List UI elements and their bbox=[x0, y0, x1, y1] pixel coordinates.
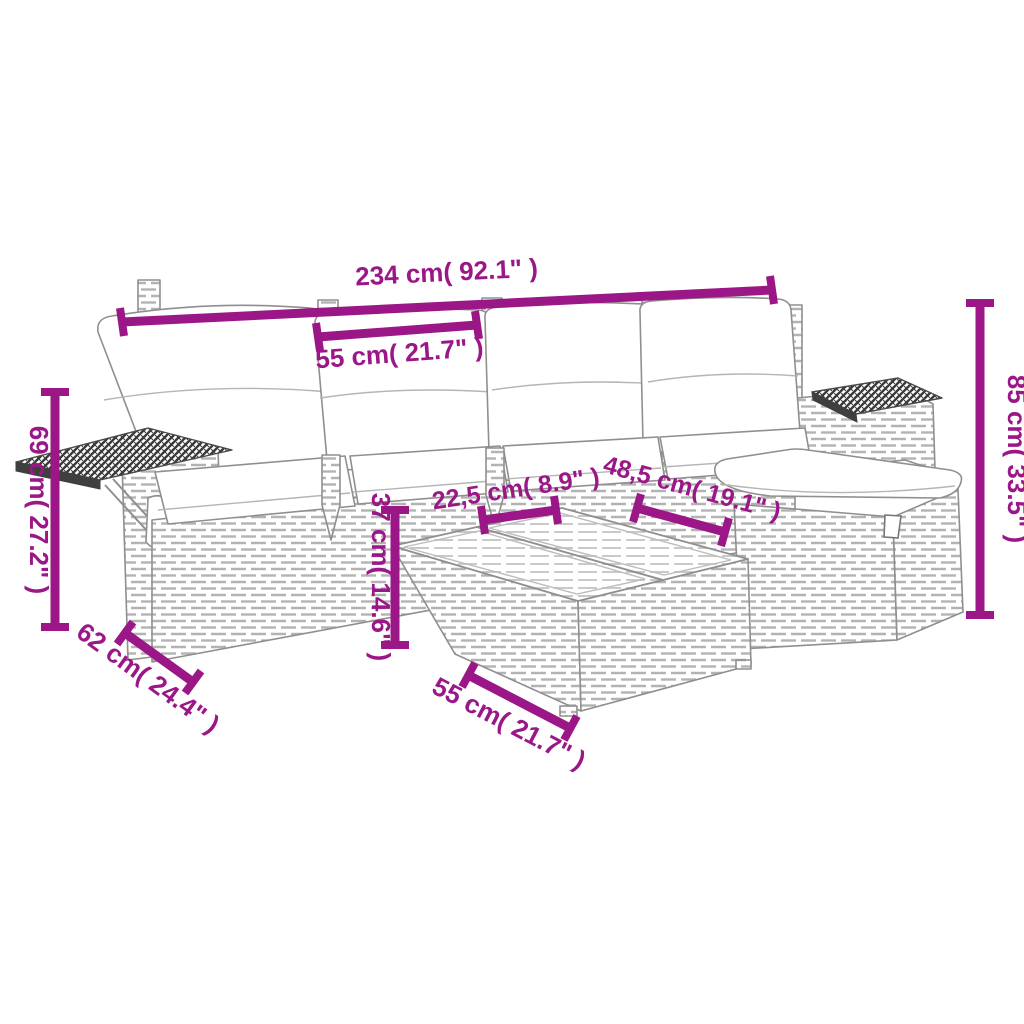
dim-label-total-height: 85 cm( 33.5" ) bbox=[1002, 375, 1024, 543]
dim-label-back-height: 69 cm( 27.2" ) bbox=[24, 426, 54, 594]
product-dimension-diagram: 234 cm( 92.1" ) 55 cm( 21.7" ) 69 cm( 27… bbox=[0, 0, 1024, 1024]
ottoman-side-face bbox=[893, 489, 963, 640]
dimension-total-height: 85 cm( 33.5" ) bbox=[966, 303, 1024, 615]
ottoman-handle bbox=[884, 515, 901, 538]
diagram-canvas: 234 cm( 92.1" ) 55 cm( 21.7" ) 69 cm( 27… bbox=[0, 0, 1024, 1024]
dim-label-overall-width: 234 cm( 92.1" ) bbox=[354, 253, 538, 292]
dim-label-seat-height: 37 cm( 14.6" ) bbox=[366, 493, 396, 661]
dimension-back-height: 69 cm( 27.2" ) bbox=[24, 392, 69, 627]
table-foot bbox=[736, 660, 751, 669]
ottoman bbox=[715, 449, 963, 649]
ottoman-front-face bbox=[734, 504, 897, 649]
table-foot bbox=[560, 706, 577, 716]
